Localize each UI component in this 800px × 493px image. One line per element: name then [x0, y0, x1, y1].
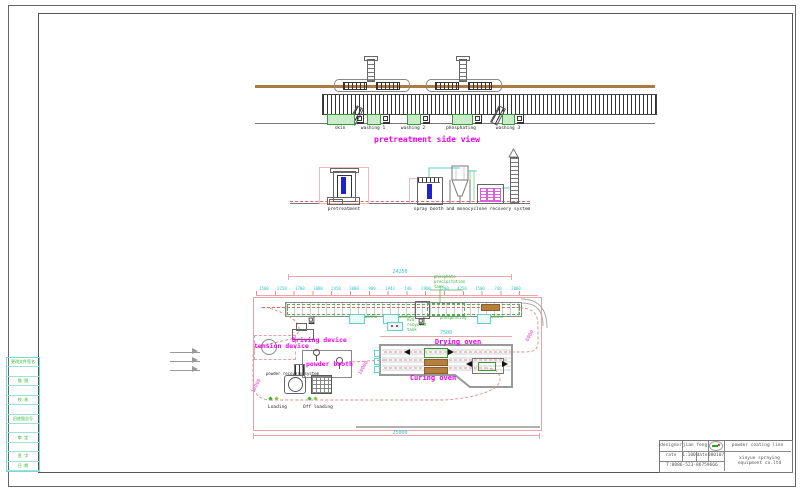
lane-marker — [374, 350, 380, 357]
dim-total-bottom-value: 25000 — [392, 430, 407, 436]
pump-icon — [423, 114, 430, 124]
exhaust-stack-2 — [459, 59, 467, 82]
plan-wash1-tank — [349, 314, 365, 324]
filter-icon — [311, 375, 332, 394]
dim-chain-value: 3000 — [349, 286, 359, 291]
revision-row: 旧底图总号 — [7, 415, 39, 424]
revision-row — [7, 424, 39, 433]
dim-chain-value: 2900 — [421, 286, 431, 291]
heat-bar — [424, 367, 448, 374]
phosphate-note: phosphate precipitation tank — [434, 275, 465, 289]
flow-arrow-icon — [448, 349, 454, 355]
h2o-note: H2O recycled tank — [407, 318, 426, 332]
dim-chain-value: 1500 — [259, 286, 269, 291]
dim-chain-value: 1500 — [475, 286, 485, 291]
recovery-fan — [284, 375, 306, 394]
heated-section — [481, 304, 500, 311]
offloading-label: Off loading — [303, 405, 333, 410]
dim-chain-value: 740 — [494, 286, 501, 291]
dim-chain-value: 140 — [404, 286, 411, 291]
wash1-label: wash1 — [365, 314, 377, 319]
revision-row: 签 字 — [7, 452, 39, 461]
revision-row: 更改文件签名 — [7, 358, 39, 367]
flow-arrow-icon — [170, 352, 200, 353]
driving-device-label: Driving device — [292, 336, 347, 344]
flow-arrow-icon — [170, 370, 200, 371]
tank-washing3 — [502, 114, 515, 125]
tank-label: phosphating — [446, 126, 476, 131]
pump-icon — [309, 316, 315, 324]
tank-label: washing 2 — [401, 126, 425, 131]
tank-phosphating — [452, 114, 473, 125]
stack-cap-2 — [456, 56, 470, 61]
stack-cap-1 — [364, 56, 378, 61]
exhaust-stack-1 — [367, 59, 375, 82]
pump-icon — [517, 114, 524, 124]
recovery-stack — [510, 157, 519, 204]
dim-chain-value: 2450 — [331, 286, 341, 291]
title-block: designer jian feng rate 1:100 date 08010… — [659, 440, 793, 473]
pump-icon — [475, 114, 482, 124]
powder-booth-label: powder booth — [306, 360, 353, 368]
tank-skin — [327, 114, 355, 125]
dim-chain-value: 1700 — [295, 286, 305, 291]
dim-total-top — [288, 276, 512, 277]
revision-row: 日 期 — [7, 462, 39, 471]
tank-label: washing 3 — [496, 126, 520, 131]
pretreat-door — [341, 177, 346, 194]
curing-oven-label: Curing oven — [410, 374, 456, 382]
dim-chain-value: 900 — [368, 286, 375, 291]
flow-arrow-icon — [170, 361, 200, 362]
revision-row — [7, 367, 39, 376]
filter-unit — [477, 184, 504, 204]
company-logo — [709, 441, 723, 451]
tank-label: washing 1 — [361, 126, 385, 131]
drying-oven-label: Drying oven — [435, 338, 481, 346]
tank-row-body — [322, 94, 657, 115]
pretreat-label: pretreatment — [328, 207, 361, 212]
phosphating-label: phosphating — [440, 315, 467, 320]
tank-washing2 — [407, 114, 421, 125]
pump-icon — [383, 114, 390, 124]
drawing-sheet: skin washing 1 washing 2 phosphating was… — [0, 0, 800, 493]
tank-washing1 — [367, 114, 381, 125]
pretreat-base-box — [329, 199, 343, 205]
dim-total-top-value: 24250 — [392, 269, 407, 275]
oven-dim-value: 7500 — [440, 330, 452, 336]
operator-icon — [313, 349, 320, 356]
dim-chain-value: 2250 — [277, 286, 287, 291]
phone-cell: T:0086-523-86759666 — [660, 461, 725, 471]
plan-wash3-tank — [477, 314, 491, 324]
revision-row — [7, 443, 39, 452]
flow-arrow-icon — [466, 361, 472, 367]
wash3-label: wash3 — [491, 314, 503, 319]
dim-chain-value: 2000 — [511, 286, 521, 291]
revision-strip: 更改文件签名 描 图 校 核 旧底图总号 审 定 签 字 日 期 — [6, 357, 40, 472]
flow-arrow-icon — [404, 349, 410, 355]
revision-row: 审 定 — [7, 433, 39, 442]
heat-bar — [424, 359, 448, 366]
lane-marker — [374, 358, 380, 365]
revision-row — [7, 405, 39, 414]
legend-box — [387, 322, 403, 331]
revision-row — [7, 386, 39, 395]
dim-chain-value: 3000 — [313, 286, 323, 291]
dim-chain-value: 1943 — [385, 286, 395, 291]
company-cell: xinyue spraying equipment co.ltd — [724, 451, 795, 471]
dim-chain-line — [256, 291, 538, 296]
drying-burner — [424, 348, 448, 358]
pump-icon — [357, 114, 364, 124]
curing-burner-unit — [472, 358, 504, 374]
loading-label: Loading — [268, 405, 287, 410]
revision-row: 校 核 — [7, 396, 39, 405]
driving-device-motor — [296, 323, 307, 331]
tank-label: skin — [335, 126, 346, 131]
flow-arrow-icon — [502, 361, 508, 367]
recovery-label: spray booth and monocyclone recovery sys… — [414, 207, 531, 212]
oven-dim-line — [380, 336, 512, 337]
lane-marker — [374, 366, 380, 373]
bottom-wall — [356, 426, 540, 428]
revision-row: 描 图 — [7, 377, 39, 386]
side-view-title: pretreatment side view — [374, 135, 480, 144]
fan-icon — [288, 377, 303, 392]
